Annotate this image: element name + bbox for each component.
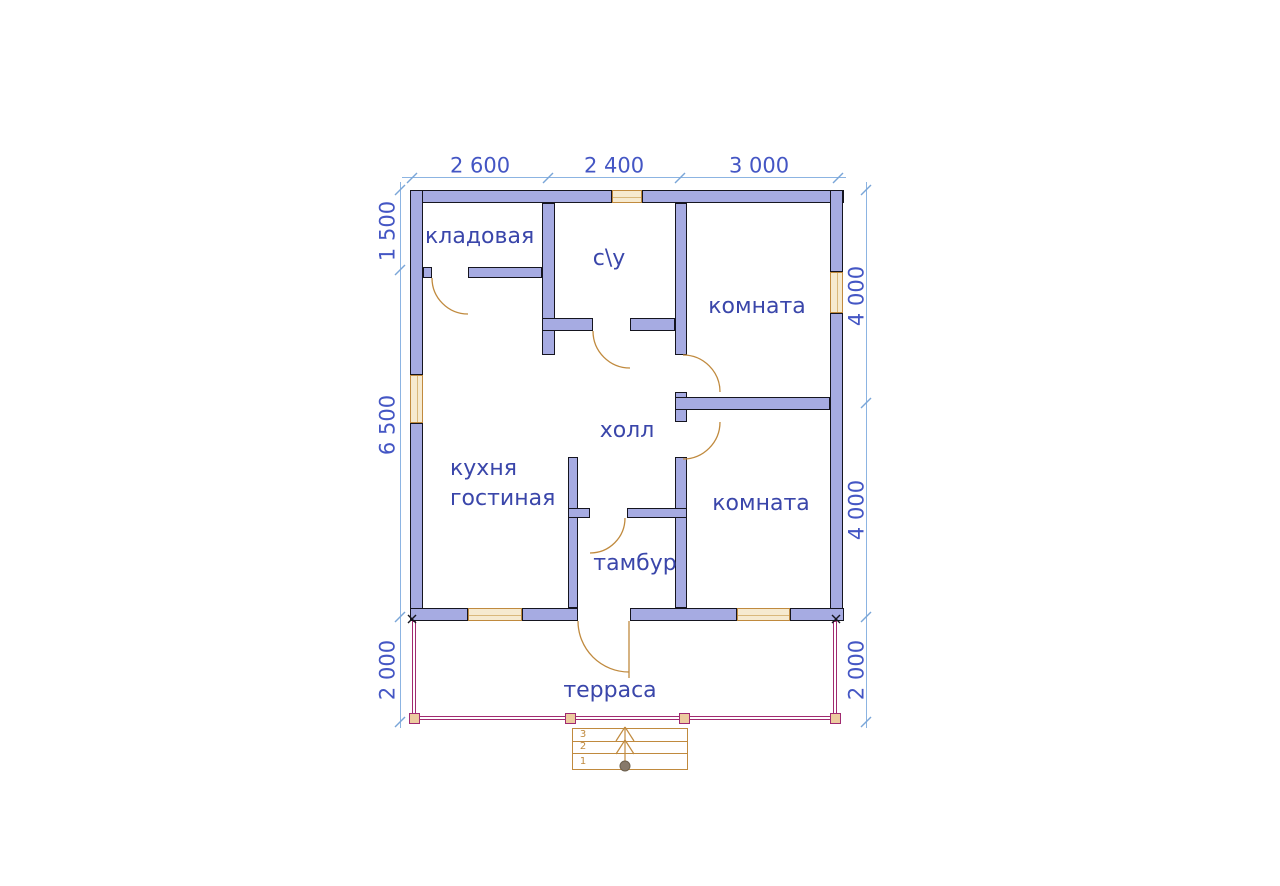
room-label-bathroom: с\у [593, 248, 626, 270]
wall-bathroom-bottom-left [542, 318, 593, 331]
stairs-box [572, 728, 688, 770]
window-room-top-right [830, 272, 843, 313]
stairs-step-number-2: 1 [580, 757, 586, 767]
stairs-tread-line-0 [572, 741, 688, 742]
window-room-bottom [737, 608, 790, 621]
stairs-step-number-1: 2 [580, 742, 586, 752]
room-label-storage: кладовая [425, 226, 534, 248]
terrace-post-0 [409, 713, 420, 724]
door-arc-vestibule [590, 518, 625, 553]
wall-rooms-divider [675, 397, 830, 410]
wall-bathroom-bottom-right [630, 318, 675, 331]
window-mullion [837, 273, 838, 312]
stairs-tread-line-1 [572, 753, 688, 754]
window-mullion [613, 197, 641, 198]
dim-label-right-2: 2 000 [847, 640, 868, 700]
dim-label-top-0: 2 600 [450, 156, 510, 177]
room-label-hall: холл [600, 420, 655, 442]
wall-bathroom-left [542, 203, 555, 355]
wall-hall-divider [627, 508, 687, 518]
dim-label-top-1: 2 400 [584, 156, 644, 177]
wall-top-right [642, 190, 844, 203]
dim-label-left-0: 1 500 [378, 201, 399, 261]
wall-bottom-4 [790, 608, 844, 621]
terrace-rail-right [833, 621, 837, 719]
window-mullion [417, 376, 418, 422]
wall-center-upper [675, 203, 687, 355]
window-kitchen-left [410, 375, 423, 423]
wall-hall-stub [568, 508, 590, 518]
terrace-post-2 [679, 713, 690, 724]
wall-bottom-2 [522, 608, 578, 621]
window-bathroom-top [612, 190, 642, 203]
room-label-living: гостиная [450, 488, 555, 510]
door-arc-entrance [578, 621, 629, 672]
wall-center-lower [675, 457, 687, 608]
terrace-post-1 [565, 713, 576, 724]
wall-top-left [410, 190, 612, 203]
dim-label-right-0: 4 000 [847, 266, 868, 326]
dim-label-left-2: 2 000 [378, 640, 399, 700]
room-label-room-top: комната [708, 296, 806, 318]
wall-left-upper [410, 190, 423, 375]
room-label-terrace: терраса [563, 680, 656, 702]
dim-tick-top-3 [833, 173, 843, 183]
dim-label-right-1: 4 000 [847, 480, 868, 540]
door-arc-room-top [683, 355, 720, 392]
window-mullion [469, 615, 521, 616]
wall-vestibule-left [568, 457, 578, 608]
room-label-room-bottom: комната [712, 493, 810, 515]
dim-tick-top-0 [407, 173, 417, 183]
door-arc-bathroom [593, 331, 630, 368]
dim-label-left-1: 6 500 [378, 395, 399, 455]
terrace-rail-bottom [412, 716, 837, 720]
room-label-kitchen: кухня [450, 458, 517, 480]
dimension-line-left [400, 182, 401, 728]
wall-right-upper [830, 190, 843, 272]
room-label-vestibule: тамбур [593, 553, 676, 575]
wall-storage-bottom [468, 267, 542, 278]
dim-label-top-2: 3 000 [729, 156, 789, 177]
dim-tick-top-2 [675, 173, 685, 183]
terrace-rail-left [412, 621, 416, 719]
wall-storage-stub [423, 267, 432, 278]
dim-tick-top-1 [543, 173, 553, 183]
terrace-post-3 [830, 713, 841, 724]
door-arc-storage [432, 278, 468, 314]
wall-right-lower [830, 313, 843, 621]
window-kitchen-bottom [468, 608, 522, 621]
window-mullion [738, 615, 789, 616]
door-arc-room-bottom [683, 422, 720, 459]
wall-bottom-3 [630, 608, 737, 621]
floor-plan: 2 6002 4003 0001 5006 5002 0004 0004 000… [0, 0, 1280, 886]
wall-left-lower [410, 423, 423, 621]
stairs-step-number-0: 3 [580, 730, 586, 740]
wall-bottom-1 [410, 608, 468, 621]
